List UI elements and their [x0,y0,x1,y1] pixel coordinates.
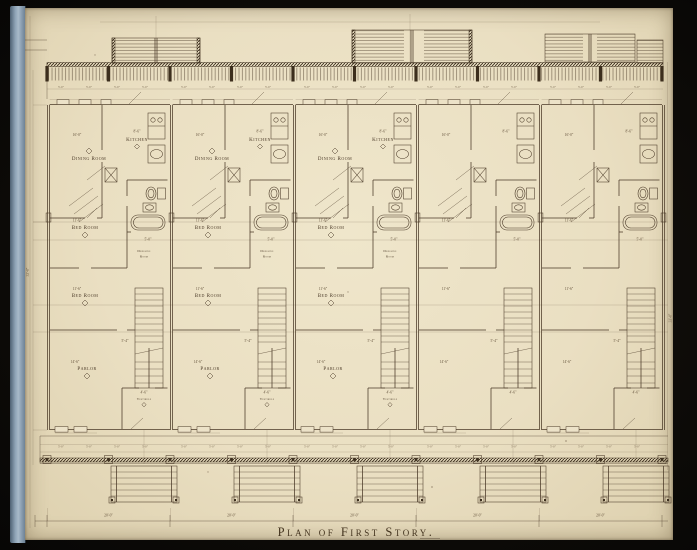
svg-text:5'-0": 5'-0" [237,445,244,449]
svg-text:5'-0": 5'-0" [58,445,65,449]
front-steps [601,466,671,503]
bed-dimension: 11'-6" [442,287,451,291]
svg-text:5'-0": 5'-0" [427,85,434,89]
rear-window [325,100,337,105]
construction-lines [33,222,668,332]
svg-text:20'-0": 20'-0" [596,514,605,518]
hall-annotations [69,166,105,222]
bed-dimension: 11'-6" [73,287,82,291]
svg-text:5'-0": 5'-0" [58,85,65,89]
end-party-wall [658,66,666,464]
bathroom-fixtures [496,180,537,232]
kitchen-fixtures [517,113,534,163]
svg-text:5'-0": 5'-0" [86,85,93,89]
parlor-dimension: 14'-6" [563,360,572,364]
svg-text:5'-0": 5'-0" [550,445,557,449]
svg-text:5'-0": 5'-0" [114,445,121,449]
stair-dimension: 5'-4" [245,339,252,343]
parlor-dimension: 14'-6" [71,360,80,364]
svg-text:5'-0": 5'-0" [304,85,311,89]
kitchen-label: Kitchen [249,138,271,143]
svg-text:5'-0": 5'-0" [511,445,518,449]
parlor-dimension: 14'-6" [194,360,203,364]
lavatory [143,203,156,212]
front-window [320,427,333,433]
lavatory [389,203,402,212]
porch-section [166,66,302,503]
svg-text:Room: Room [263,255,271,259]
kitchen-label: Kitchen [126,138,148,143]
bed-dimension: 11'-6" [565,287,574,291]
front-window [197,427,210,433]
wall-flue [292,213,297,222]
title-block: Plan of First Story. [278,525,440,539]
svg-text:5'-0": 5'-0" [606,445,613,449]
vestibule-dimension: 4'-6" [510,391,517,395]
party-wall [294,105,296,430]
svg-text:5'-0": 5'-0" [550,85,557,89]
flue-box [105,168,117,182]
staircase [381,288,409,388]
rear-window [57,100,69,105]
parlor-dimension: 14'-6" [440,360,449,364]
rear-window [202,100,214,105]
kitchen-dimension: 8'-6" [257,130,264,134]
bed-room-label: Bed Room [72,294,99,299]
rear-door-swing [498,92,510,104]
front-steps [478,466,548,503]
lavatory [266,203,279,212]
flue-box [351,168,363,182]
lot-depth-dimension: 33'-0" [669,313,673,322]
bed-bed-partition [419,232,496,268]
rear-window [448,100,460,105]
bed-room-label: Bed Room [318,294,345,299]
bed-bed-partition [296,232,373,268]
svg-text:5'-0": 5'-0" [360,85,367,89]
rear-window [224,100,234,105]
svg-text:5'-0": 5'-0" [209,85,216,89]
svg-text:5'-0": 5'-0" [142,85,149,89]
parlor-dimension: 14'-6" [317,360,326,364]
front-window [424,427,437,433]
floor-plan-drawing: 16'-0" Dining Room 8'-6" Kitchen 11'-6" … [0,0,697,550]
hall-annotations [561,166,597,222]
flue-box [228,168,240,182]
front-window [547,427,560,433]
bed-room-label: Bed Room [318,226,345,231]
svg-text:5'-0": 5'-0" [483,85,490,89]
svg-text:5'-0": 5'-0" [360,445,367,449]
dining-room-label: Dining Room [318,157,352,162]
vestibule-dimension: 4'-6" [633,391,640,395]
porch-section [289,66,425,503]
rear-window [470,100,480,105]
lavatory [512,203,525,212]
front-door-swing [500,418,512,429]
front-window [178,427,191,433]
front-steps [109,466,179,503]
svg-text:5'-0": 5'-0" [86,445,93,449]
bed-bed-partition [542,232,619,268]
toilet-tank [281,188,289,199]
stair-dimension: 5'-4" [491,339,498,343]
kitchen-fixtures [394,113,411,163]
svg-text:5'-0": 5'-0" [634,445,641,449]
kitchen-dimension: 8'-6" [380,130,387,134]
toilet-tank [650,188,658,199]
dining-dimension: 16'-0" [442,133,451,137]
kitchen-fixtures [271,113,288,163]
rear-window [549,100,561,105]
rear-window [426,100,438,105]
svg-text:5'-0": 5'-0" [427,445,434,449]
front-door-swing [377,418,389,429]
party-wall [171,105,173,430]
svg-text:20'-0": 20'-0" [227,514,236,518]
bathroom-fixtures [619,180,660,232]
rear-window [79,100,91,105]
svg-text:5'-0": 5'-0" [483,445,490,449]
rear-door-swing [375,92,387,104]
svg-text:5'-0": 5'-0" [237,85,244,89]
rear-window [571,100,583,105]
lot-depth-dimension: 33'-0" [26,267,30,276]
bed-room-label: Bed Room [195,294,222,299]
drawing-title: Plan of First Story. [278,525,435,539]
bed-dimension: 11'-6" [565,219,574,223]
svg-text:5'-0": 5'-0" [265,85,272,89]
wall-flue [169,213,174,222]
dressing-room-label: Dressing [260,249,273,253]
tub-dimension: 5'-0" [268,238,275,242]
staircase [135,288,163,388]
bed-dimension: 11'-6" [196,219,205,223]
toilet-tank [158,188,166,199]
svg-text:20'-0": 20'-0" [350,514,359,518]
rear-window [101,100,111,105]
staircase [258,288,286,388]
front-door-swing [623,418,635,429]
photograph-background: 16'-0" Dining Room 8'-6" Kitchen 11'-6" … [0,0,697,550]
rear-stairs [112,38,200,63]
svg-text:5'-0": 5'-0" [265,445,272,449]
flue-box [597,168,609,182]
bathroom-fixtures [250,180,291,232]
svg-text:20'-0": 20'-0" [473,514,482,518]
parlor-label: Parlor [77,367,96,372]
lavatory [635,203,648,212]
rear-stairs [352,30,472,63]
tub-dimension: 5'-0" [391,238,398,242]
porch-section [43,66,179,503]
svg-text:5'-0": 5'-0" [578,85,585,89]
kitchen-dimension: 8'-6" [134,130,141,134]
porch-section [412,66,548,503]
stair-dimension: 5'-4" [122,339,129,343]
bed-dimension: 11'-6" [196,287,205,291]
svg-text:5'-0": 5'-0" [606,85,613,89]
front-window [55,427,68,433]
flue-box [474,168,486,182]
rear-window [593,100,603,105]
porch-section [535,66,671,503]
vestibule-dimension: 4'-6" [264,391,271,395]
front-door-swing [254,418,266,429]
stair-dimension: 5'-4" [368,339,375,343]
svg-text:Room: Room [140,255,148,259]
parlor-label: Parlor [200,367,219,372]
svg-text:5'-0": 5'-0" [511,85,518,89]
kitchen-dimension: 8'-6" [626,130,633,134]
kitchen-fixtures [148,113,165,163]
svg-text:5'-0": 5'-0" [142,445,149,449]
stair-dimension: 5'-4" [614,339,621,343]
bed-dimension: 11'-6" [319,219,328,223]
vestibule-dimension: 4'-6" [387,391,394,395]
bed-dimension: 11'-6" [442,219,451,223]
vestibule-label: Vestibule [260,397,275,401]
svg-text:5'-0": 5'-0" [388,445,395,449]
rear-door-swing [129,92,141,104]
svg-text:5'-0": 5'-0" [332,85,339,89]
dining-room-label: Dining Room [72,157,106,162]
dining-room-label: Dining Room [195,157,229,162]
staircase [504,288,532,388]
rear-window [180,100,192,105]
dressing-room-label: Dressing [383,249,396,253]
kitchen-fixtures [640,113,657,163]
svg-text:5'-0": 5'-0" [634,85,641,89]
bed-dimension: 11'-6" [319,287,328,291]
tub-dimension: 5'-0" [637,238,644,242]
hall-annotations [315,166,351,222]
front-window [74,427,87,433]
rear-stairs [637,40,663,63]
bed-dimension: 11'-6" [73,219,82,223]
svg-text:5'-0": 5'-0" [181,85,188,89]
tub-dimension: 5'-0" [145,238,152,242]
front-window [301,427,314,433]
front-window [443,427,456,433]
party-wall [48,105,50,430]
bathroom-fixtures [127,180,168,232]
rear-window [303,100,315,105]
dining-dimension: 16'-0" [196,133,205,137]
svg-text:5'-0": 5'-0" [455,85,462,89]
kitchen-dimension: 8'-6" [503,130,510,134]
svg-text:20'-0": 20'-0" [104,514,113,518]
party-wall [417,105,419,430]
bed-room-label: Bed Room [72,226,99,231]
rear-door-swing [252,92,264,104]
sheet-margin-lines: 33'-0" 33'-0" [25,14,673,528]
front-door-swing [131,418,143,429]
toilet-tank [404,188,412,199]
dining-dimension: 16'-0" [319,133,328,137]
toilet-tank [527,188,535,199]
svg-text:5'-0": 5'-0" [209,445,216,449]
vestibule-dimension: 4'-6" [141,391,148,395]
front-steps [232,466,302,503]
svg-text:5'-0": 5'-0" [332,445,339,449]
parlor-label: Parlor [323,367,342,372]
kitchen-label: Kitchen [372,138,394,143]
rear-door-swing [621,92,633,104]
svg-text:5'-0": 5'-0" [455,445,462,449]
bathroom-fixtures [373,180,414,232]
svg-text:5'-0": 5'-0" [304,445,311,449]
rear-window [347,100,357,105]
hall-annotations [438,166,474,222]
dining-dimension: 16'-0" [565,133,574,137]
svg-text:Room: Room [386,255,394,259]
wall-flue [415,213,420,222]
vestibule-label: Vestibule [383,397,398,401]
hall-annotations [192,166,228,222]
bed-room-label: Bed Room [195,226,222,231]
front-window [566,427,579,433]
rear-stair-blocks [112,30,663,63]
rear-stairs [545,34,635,62]
svg-text:5'-0": 5'-0" [181,445,188,449]
vestibule-label: Vestibule [137,397,152,401]
bed-bed-partition [50,232,127,268]
front-steps [355,466,425,503]
wall-flue [538,213,543,222]
svg-text:5'-0": 5'-0" [578,445,585,449]
svg-text:5'-0": 5'-0" [114,85,121,89]
dressing-room-label: Dressing [137,249,150,253]
tub-dimension: 5'-0" [514,238,521,242]
dining-dimension: 16'-0" [73,133,82,137]
svg-text:5'-0": 5'-0" [388,85,395,89]
bed-bed-partition [173,232,250,268]
wall-flue [46,213,51,222]
party-wall [540,105,542,430]
staircase [627,288,655,388]
